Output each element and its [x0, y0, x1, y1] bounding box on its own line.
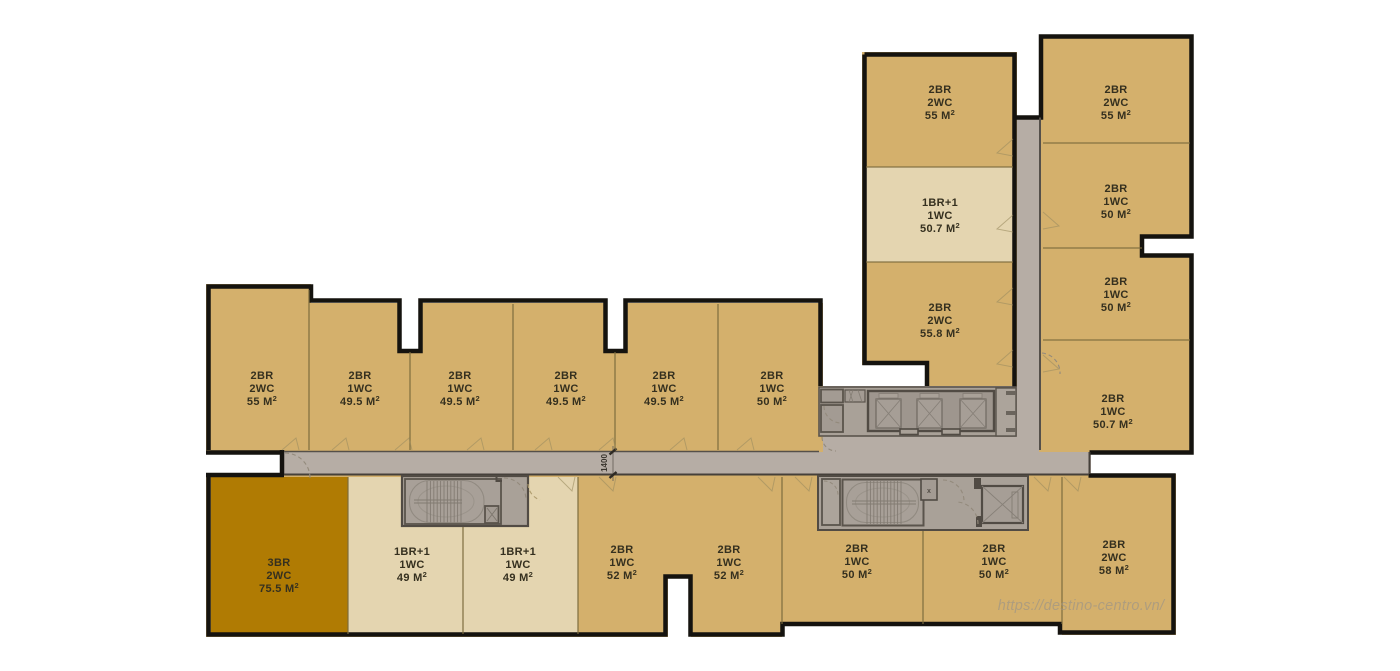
- svg-text:2BR2WC55 M2: 2BR2WC55 M2: [925, 84, 955, 122]
- svg-text:1BR+11WC49 M2: 1BR+11WC49 M2: [394, 546, 430, 584]
- svg-text:2BR2WC55 M2: 2BR2WC55 M2: [1101, 84, 1131, 122]
- svg-text:x: x: [927, 488, 931, 495]
- svg-text:2BR1WC50 M2: 2BR1WC50 M2: [1101, 183, 1131, 221]
- svg-text:2BR1WC52 M2: 2BR1WC52 M2: [607, 544, 637, 582]
- svg-text:1400: 1400: [600, 454, 609, 472]
- svg-text:2BR2WC55 M2: 2BR2WC55 M2: [247, 370, 277, 408]
- svg-text:2BR2WC58 M2: 2BR2WC58 M2: [1099, 539, 1129, 577]
- svg-text:2BR1WC50 M2: 2BR1WC50 M2: [979, 543, 1009, 581]
- svg-text:2BR1WC50 M2: 2BR1WC50 M2: [757, 370, 787, 408]
- svg-text:2BR1WC50 M2: 2BR1WC50 M2: [1101, 276, 1131, 314]
- svg-text:https://destino-centro.vn/: https://destino-centro.vn/: [998, 598, 1166, 614]
- svg-text:2BR1WC50 M2: 2BR1WC50 M2: [842, 543, 872, 581]
- svg-text:2BR1WC52 M2: 2BR1WC52 M2: [714, 544, 744, 582]
- svg-text:1BR+11WC49 M2: 1BR+11WC49 M2: [500, 546, 536, 584]
